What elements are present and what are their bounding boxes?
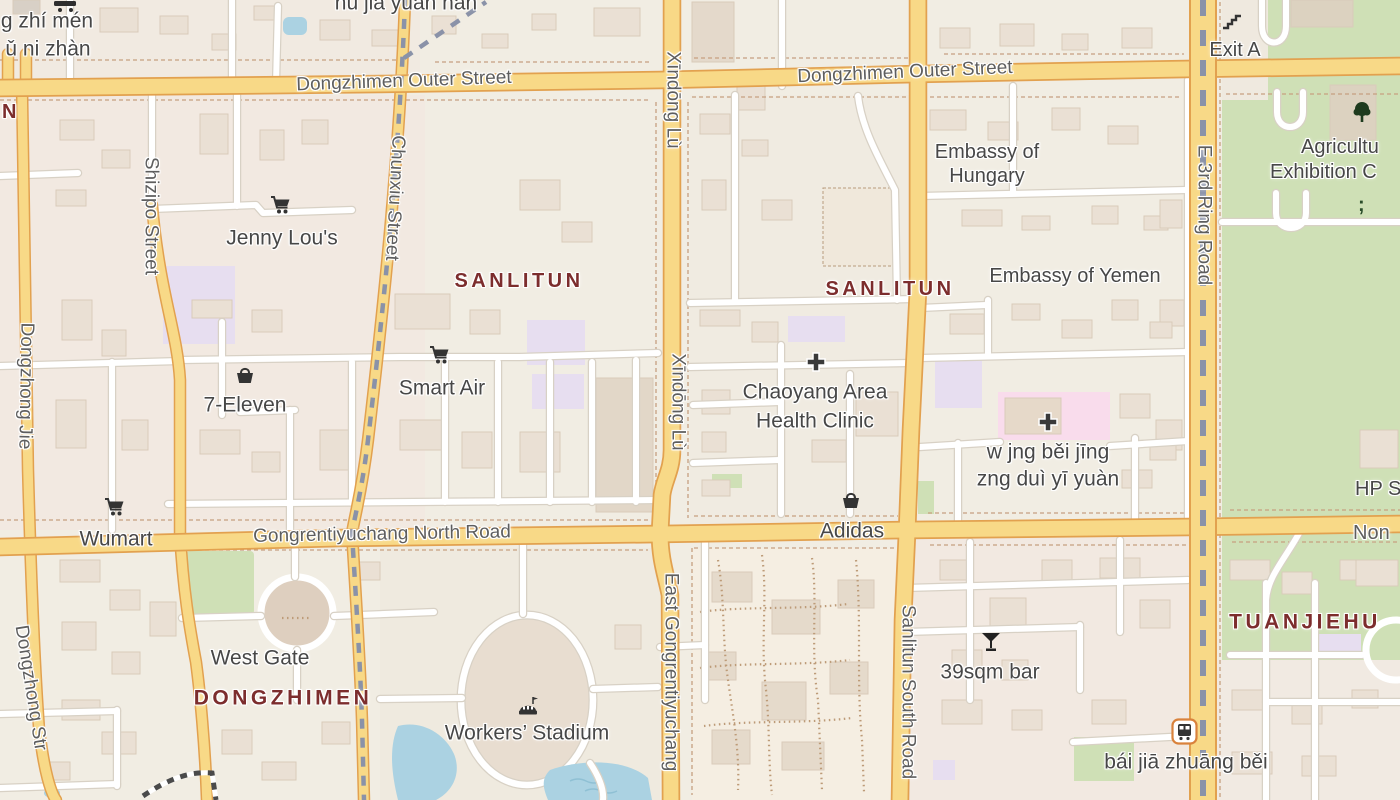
- label-hu-jia-yuan-nan: hù jiā yuán nán: [335, 0, 477, 16]
- label-embassy-hungary-line2: Hungary: [935, 164, 1039, 188]
- road-label-xindong-lu-south: Xīndōng Lù: [666, 353, 689, 450]
- label-adidas: Adidas: [820, 518, 884, 543]
- subway-exit-stairs-icon[interactable]: [1221, 6, 1245, 35]
- label-chaoyang-clinic: Chaoyang Area Health Clinic: [743, 378, 888, 437]
- road-label-e-3rd-ring: E 3rd Ring Road: [1192, 145, 1215, 285]
- road-label-dongzhong-jie: Dongzhong Jie: [12, 322, 37, 449]
- convenience-basket-icon[interactable]: [839, 489, 863, 518]
- hospital-cross-icon[interactable]: [1036, 410, 1060, 439]
- district-label-dongzhimen: DONGZHIMEN: [194, 685, 373, 710]
- bus-stop-icon[interactable]: [1171, 718, 1198, 750]
- convenience-basket-icon[interactable]: [233, 364, 257, 393]
- road-label-gongrentiyuchang-north: Gongrentiyuchang North Road: [253, 521, 511, 548]
- label-39sqm-bar: 39sqm bar: [940, 659, 1039, 684]
- supermarket-cart-icon[interactable]: [429, 344, 453, 371]
- label-agricultural-line1: Agricultu: [1301, 135, 1379, 159]
- label-chaoyang-clinic-line1: Chaoyang Area: [743, 378, 888, 407]
- road-label-non-partial: Non: [1353, 521, 1390, 545]
- label-workers-stadium: Workers’ Stadium: [445, 720, 610, 745]
- label-embassy-yemen: Embassy of Yemen: [989, 264, 1160, 288]
- road-label-xindong-lu-north: Xīndōng Lù: [661, 51, 684, 148]
- label-partial-pinyin-line2: ǔ ni zhàn: [5, 36, 90, 61]
- road-label-shizipo-street: Shizipo Street: [139, 157, 162, 275]
- district-label-n-partial: N: [2, 100, 20, 124]
- road-label-east-gongrentiyuchang: East Gongrentiyuchang: [659, 573, 682, 772]
- small-amenity-icon: ;: [1358, 194, 1365, 217]
- supermarket-cart-icon[interactable]: [270, 194, 294, 221]
- stadium-icon[interactable]: [514, 694, 542, 723]
- label-hospital-pinyin: w jng běi jīng zng duì yī yuàn: [977, 439, 1119, 494]
- map-canvas[interactable]: g zhí mén ǔ ni zhàn hù jiā yuán nán Dong…: [0, 0, 1400, 800]
- label-smart-air: Smart Air: [399, 375, 485, 400]
- label-bai-jia-zhuang-bei: bái jiā zhuāng běi: [1104, 749, 1267, 774]
- label-hospital-pinyin-line2: zng duì yī yuàn: [977, 466, 1119, 493]
- label-agricultural-line2: Exhibition C: [1270, 160, 1377, 184]
- label-seven-eleven: 7-Eleven: [204, 392, 287, 417]
- label-jenny-lous: Jenny Lou's: [226, 225, 337, 250]
- district-label-sanlitun-east: SANLITUN: [825, 277, 954, 301]
- label-west-gate: West Gate: [211, 645, 310, 670]
- west-gate-roundabout: [261, 577, 333, 649]
- road-label-sanlitun-south: Sanlitun South Road: [896, 605, 919, 779]
- label-hp-s: HP S: [1355, 477, 1400, 501]
- label-chaoyang-clinic-line2: Health Clinic: [743, 407, 888, 436]
- label-exit-a: Exit A: [1209, 38, 1260, 62]
- district-label-tuanjiehu: TUANJIEHU: [1229, 609, 1381, 634]
- clinic-cross-icon[interactable]: [804, 350, 828, 379]
- label-wumart: Wumart: [79, 526, 152, 551]
- label-embassy-hungary: Embassy of Hungary: [935, 140, 1039, 188]
- district-label-sanlitun-west: SANLITUN: [454, 269, 583, 293]
- label-hospital-pinyin-line1: w jng běi jīng: [977, 439, 1119, 466]
- park-tree-icon: [1349, 100, 1375, 133]
- label-embassy-hungary-line1: Embassy of: [935, 140, 1039, 164]
- supermarket-cart-icon[interactable]: [104, 496, 128, 523]
- bar-cocktail-icon[interactable]: [979, 630, 1003, 659]
- partial-icon-top-edge: [52, 0, 82, 18]
